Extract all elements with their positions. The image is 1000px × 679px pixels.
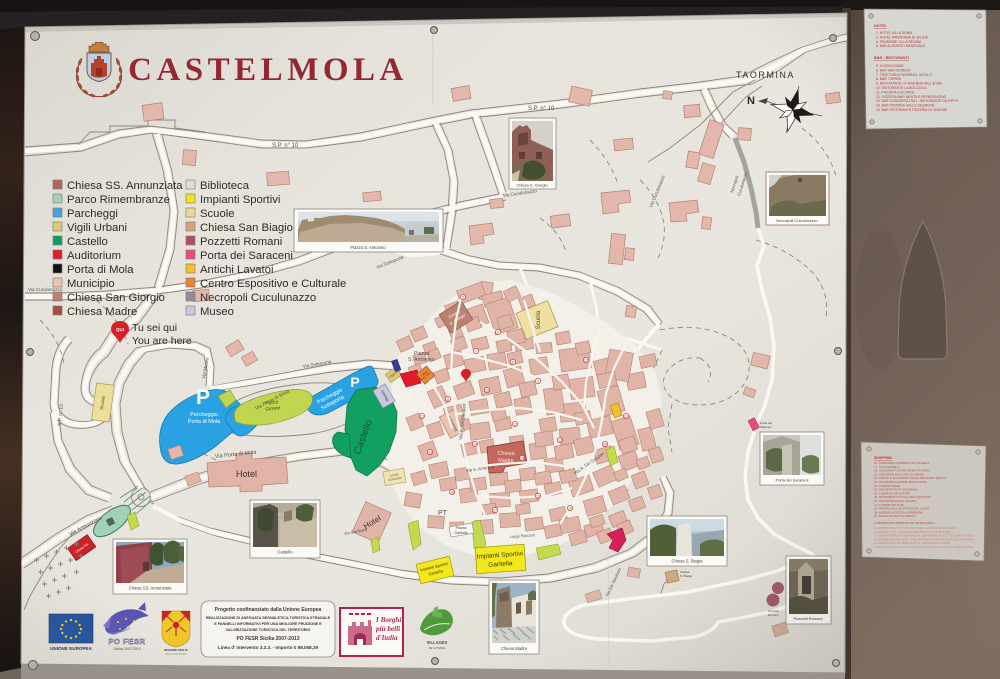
svg-text:SHOPPING: SHOPPING	[874, 456, 892, 460]
svg-text:8. BAR TURRISI: 8. BAR TURRISI	[876, 77, 901, 81]
svg-text:10. RISTORANTE LA BOCCIOLA: 10. RISTORANTE LA BOCCIOLA	[876, 86, 928, 90]
svg-text:11. PIZZERIA CICCINOS: 11. PIZZERIA CICCINOS	[876, 90, 915, 94]
svg-text:1. HOTEL VILLA SONIA: 1. HOTEL VILLA SONIA	[876, 31, 913, 35]
svg-text:F ARTIGIANATO A TUTTO A LUNGO: F ARTIGIANATO A TUTTO A LUNGO PROGETTO C…	[874, 545, 974, 549]
svg-text:5. CHIOSCO BAR: 5. CHIOSCO BAR	[876, 64, 904, 68]
svg-text:LABORATORI ARTISTICI DI ARTIGI: LABORATORI ARTISTICI DI ARTIGIANALI	[874, 521, 935, 525]
svg-text:12. PIZZERIA BAR MENTA E PEPE: 12. PIZZERIA BAR MENTA E PEPERONCINO	[876, 95, 947, 99]
svg-text:15. BAR RISTORANTE PIZZERIA L: 15. BAR RISTORANTE PIZZERIA LE MIMOSE	[876, 108, 948, 112]
svg-text:6. BAR SAN GIORGIO: 6. BAR SAN GIORGIO	[876, 68, 911, 72]
svg-text:3. PENSIONE VILLA REGINA: 3. PENSIONE VILLA REGINA	[876, 40, 922, 44]
svg-text:13. BAR COSMOPOLITAN - RISTORA: 13. BAR COSMOPOLITAN - RISTORANTE DA PIP…	[876, 99, 959, 103]
svg-text:14. BAR PIZZERIA GALLO CEDRON: 14. BAR PIZZERIA GALLO CEDRONE	[876, 104, 936, 108]
svg-text:2. HOTEL PANORAMA DI SICILIA: 2. HOTEL PANORAMA DI SICILIA	[876, 35, 929, 39]
svg-text:BAR - RISTORANTI: BAR - RISTORANTI	[874, 56, 909, 60]
svg-text:HOTEL: HOTEL	[874, 24, 888, 28]
svg-text:7. TRATTORIA PIZZERIA IL VI: 7. TRATTORIA PIZZERIA IL VICOLO	[876, 73, 932, 77]
svg-text:30. BAZAR RAGENI GIUSEPPA: 30. BAZAR RAGENI GIUSEPPA	[874, 514, 916, 518]
svg-text:9. RISTORANTE LA TAVERNA DE: 9. RISTORANTE LA TAVERNA DELL'ETNA	[876, 82, 943, 86]
svg-text:4. B&B AL BORGO MEDIEVALE: 4. B&B AL BORGO MEDIEVALE	[876, 44, 926, 48]
